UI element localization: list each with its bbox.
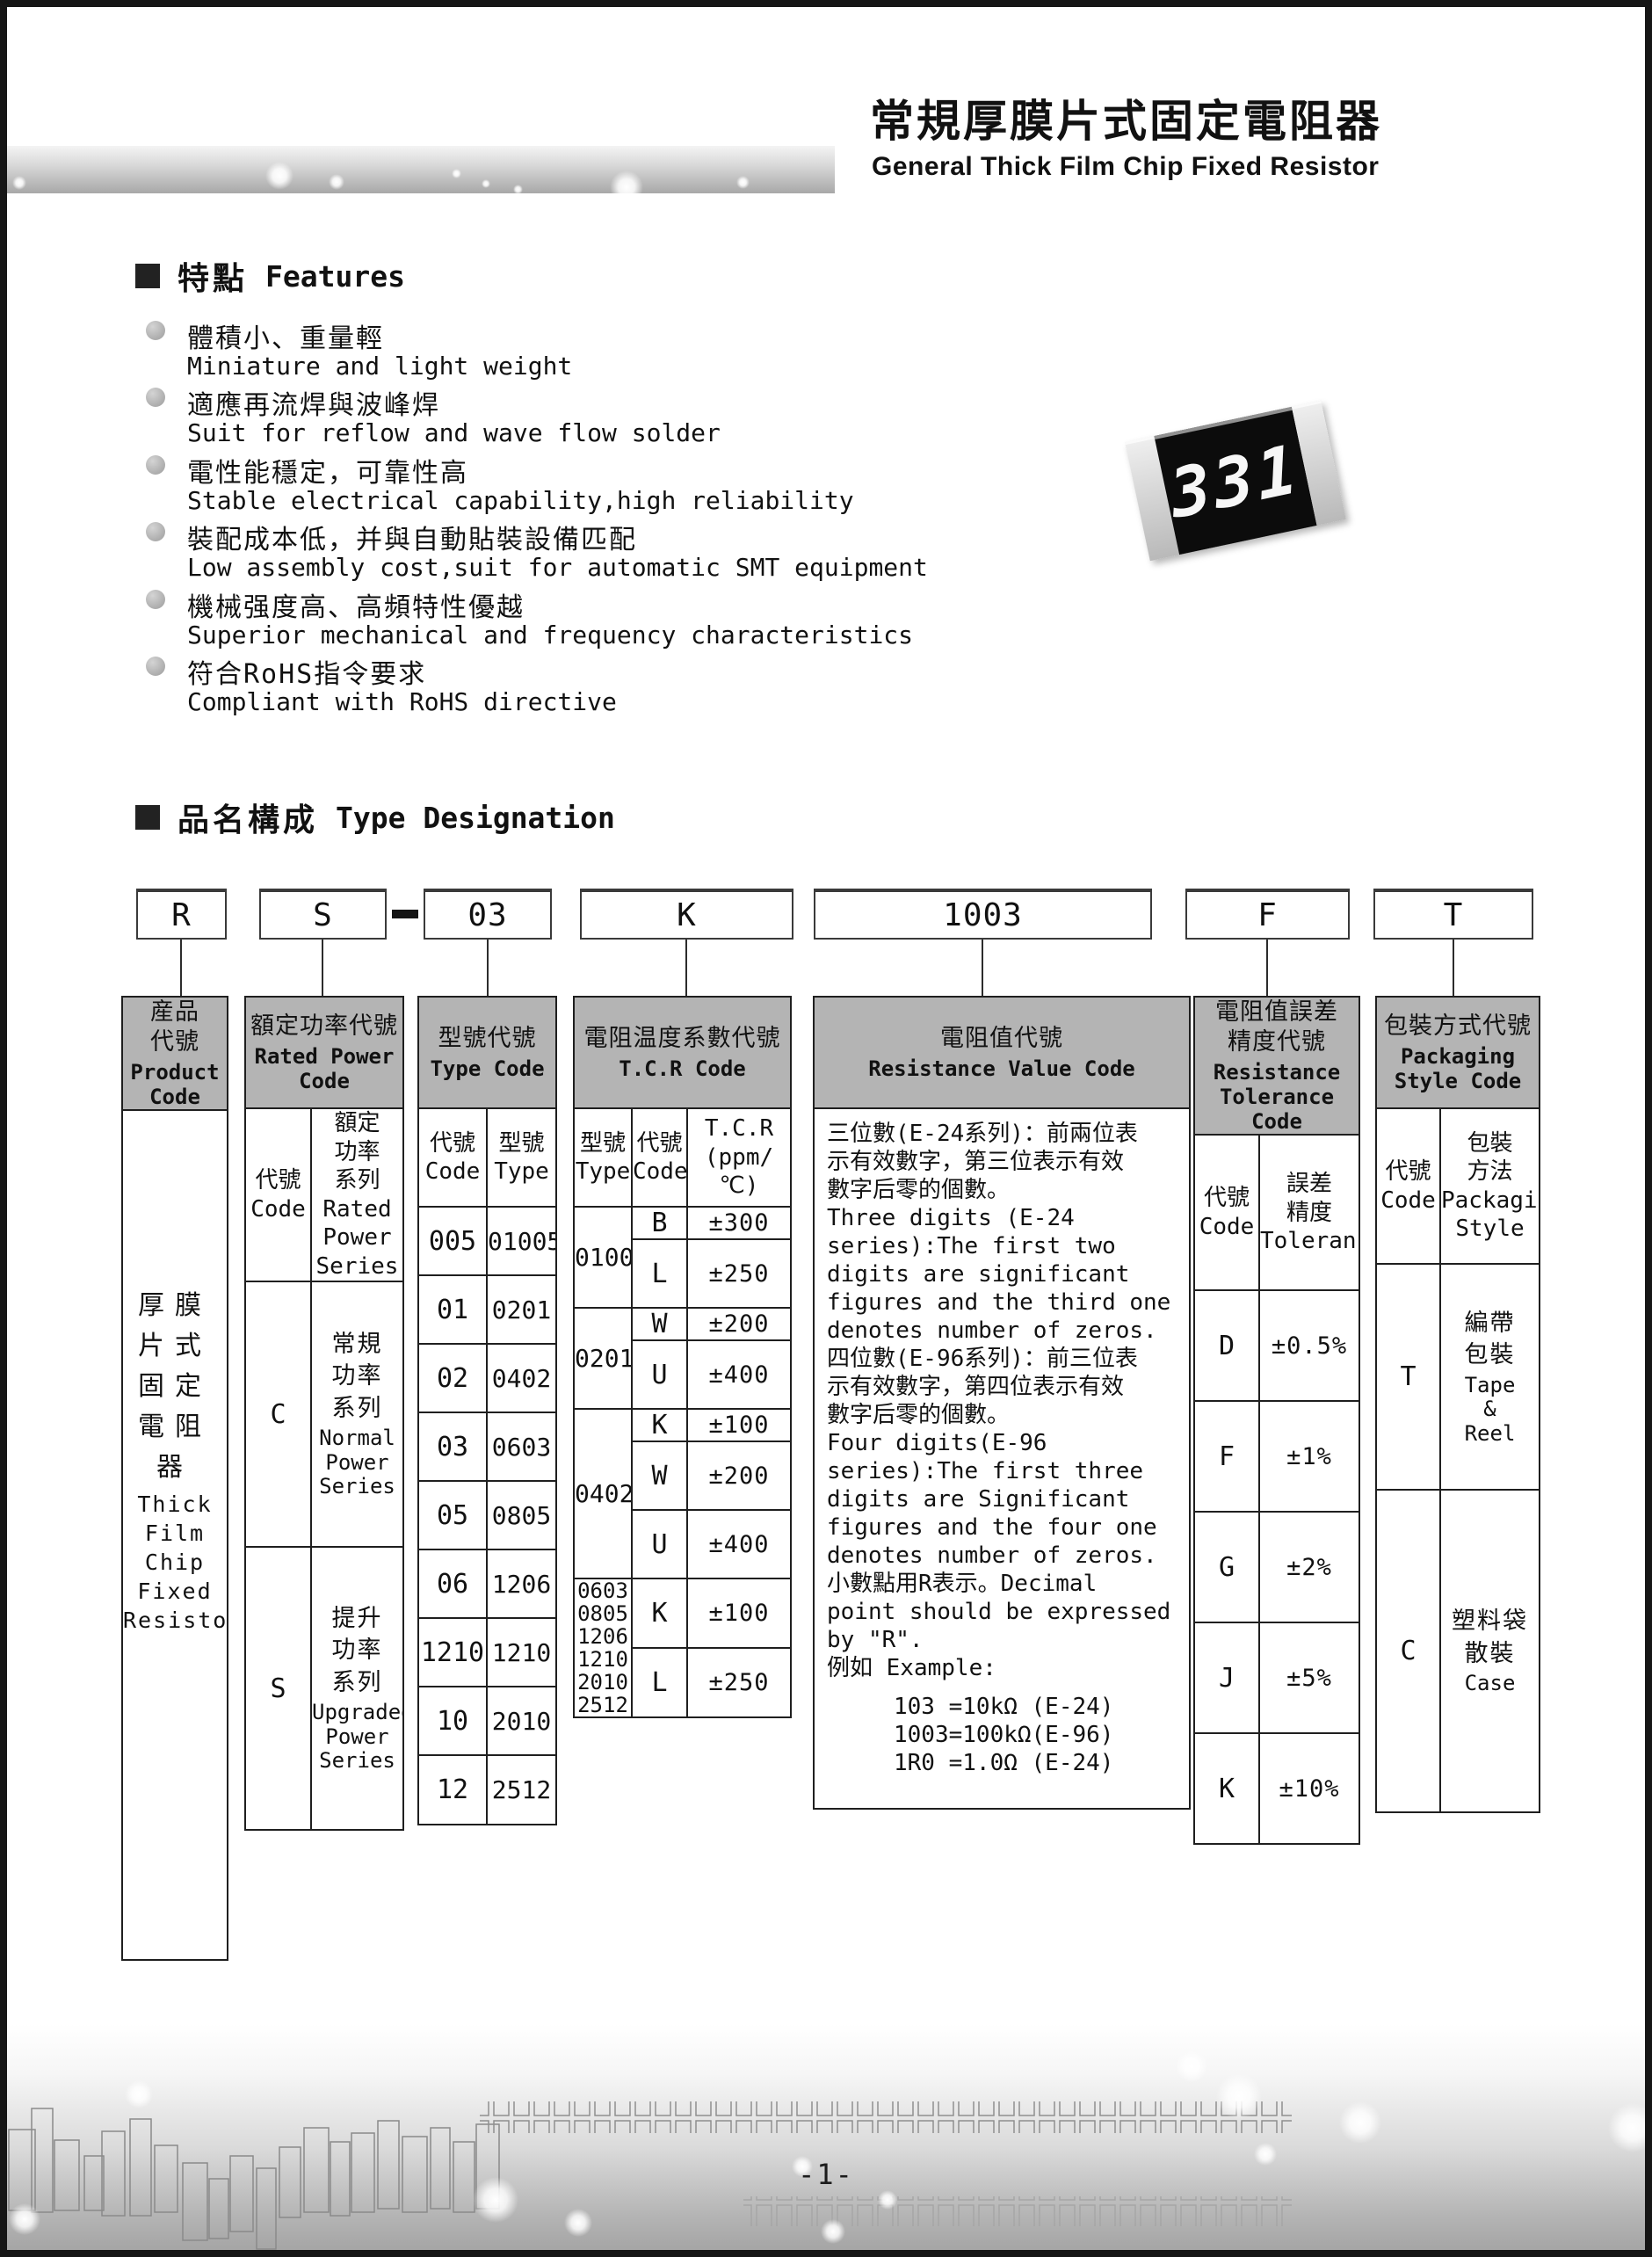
type-row-type: 2010 [487, 1687, 556, 1755]
resistance-value-text: 三位數(E-24系列)：前兩位表 示有效數字，第三位表示有效 數字后零的個數。 … [815, 1109, 1189, 1682]
resistance-value-column: 電阻值代號 Resistance Value Code 三位數(E-24系列)：… [813, 996, 1191, 1810]
packaging-en: Case [1441, 1672, 1539, 1696]
type-row-code: 1210 [418, 1618, 487, 1687]
tcr-value: ±250 [687, 1239, 791, 1308]
type-row-code: 005 [418, 1207, 487, 1275]
sparkle-icon [513, 185, 523, 194]
tcr-value: ±200 [687, 1308, 791, 1340]
tcr-value: ±250 [687, 1648, 791, 1717]
power-series-cell: 提升 功率 系列 Upgraded Power Series [311, 1547, 403, 1830]
header-gradient-bar [7, 146, 835, 193]
code-box-packaging: T [1373, 889, 1533, 940]
tolerance-value: ±1% [1259, 1401, 1359, 1512]
type-row-type: 0805 [487, 1481, 556, 1549]
type-row-type: 2512 [487, 1755, 556, 1825]
tcr-type-group: 0201 [574, 1308, 632, 1409]
feature-text-en: Low assembly cost,suit for automatic SMT… [187, 553, 928, 582]
subheader-text: 代號 Code [1195, 1184, 1258, 1241]
header-zh: 産品 代號 [123, 998, 227, 1057]
subheader-tolerance: 誤差 精度 Tolerance [1259, 1135, 1359, 1290]
power-series-cell: 常規 功率 系列 Normal Power Series [311, 1281, 403, 1547]
header-en: T.C.R Code [575, 1056, 790, 1081]
feature-item: 符合RoHS指令要求 Compliant with RoHS directive [146, 652, 1112, 721]
code-box-type: 03 [424, 889, 552, 940]
connector-line [180, 940, 182, 996]
dash-separator [392, 910, 418, 918]
tcr-code: W [632, 1441, 687, 1510]
product-code-header: 産品 代號 Product Code [122, 997, 228, 1110]
header-zh: 電阻温度系數代號 [575, 1024, 790, 1054]
packaging-zh: 編帶 包裝 [1441, 1308, 1539, 1372]
bottom-decoration-graphic [7, 2024, 1645, 2250]
power-code-cell: C [245, 1281, 311, 1547]
tolerance-code: K [1194, 1733, 1259, 1844]
tcr-code: K [632, 1409, 687, 1441]
rated-power-column: 額定功率代號 Rated Power Code 代號 Code 額定 功率 系列… [244, 996, 404, 1831]
subheader-series: 額定 功率 系列 Rated Power Series [311, 1108, 403, 1281]
feature-item: 機械强度高、高頻特性優越 Superior mechanical and fre… [146, 585, 1112, 654]
packaging-header: 包裝方式代號 Packaging Style Code [1376, 997, 1540, 1108]
features-section-heading: 特點 Features [135, 253, 405, 299]
header-zh: 額定功率代號 [246, 1012, 402, 1041]
bullet-icon [146, 455, 165, 475]
tcr-code: B [632, 1207, 687, 1239]
feature-text-zh: 機械强度高、高頻特性優越 [187, 585, 525, 624]
chip-body: 331 [1154, 407, 1316, 555]
feature-item: 適應再流焊與波峰焊 Suit for reflow and wave flow … [146, 383, 1112, 452]
subheader-text: 代號 Code [1377, 1158, 1439, 1215]
section-square-marker [135, 805, 160, 830]
features-heading-en: Features [265, 259, 405, 294]
connector-line [487, 940, 489, 996]
tcr-value: ±300 [687, 1207, 791, 1239]
connector-line [1266, 940, 1268, 996]
tcr-code: U [632, 1510, 687, 1578]
feature-item: 裝配成本低，并與自動貼裝設備匹配 Low assembly cost,suit … [146, 518, 1112, 586]
tcr-code: W [632, 1308, 687, 1340]
sparkle-icon [265, 162, 293, 190]
header-en: Product Code [123, 1060, 227, 1110]
resistance-value-header: 電阻值代號 Resistance Value Code [814, 997, 1190, 1108]
tolerance-value: ±10% [1259, 1733, 1359, 1844]
page-number: -1- [7, 2158, 1645, 2191]
code-box-product: R [136, 889, 227, 940]
tcr-value: ±100 [687, 1578, 791, 1648]
packaging-en: Tape & Reel [1441, 1374, 1539, 1447]
feature-item: 電性能穩定，可靠性高 Stable electrical capability,… [146, 451, 1112, 519]
tcr-header: 電阻温度系數代號 T.C.R Code [574, 997, 791, 1108]
series-en: Upgraded Power Series [312, 1701, 402, 1774]
packaging-style-cell: 編帶 包裝 Tape & Reel [1440, 1264, 1540, 1490]
type-row-code: 10 [418, 1687, 487, 1755]
page-title-en: General Thick Film Chip Fixed Resistor [872, 152, 1379, 182]
tolerance-code: G [1194, 1512, 1259, 1622]
page-title-zh: 常規厚膜片式固定電阻器 [870, 86, 1382, 149]
sparkle-icon [12, 176, 26, 190]
packaging-code: T [1376, 1264, 1440, 1490]
header-en: Resistance Tolerance Code [1195, 1060, 1359, 1135]
feature-text-en: Stable electrical capability,high reliab… [187, 486, 854, 515]
power-code-cell: S [245, 1547, 311, 1830]
bottom-decoration-band [7, 2024, 1645, 2250]
designation-section-heading: 品名構成 Type Designation [135, 795, 615, 840]
tcr-code: L [632, 1648, 687, 1717]
type-row-code: 06 [418, 1549, 487, 1618]
sparkle-icon [482, 179, 490, 188]
bullet-icon [146, 590, 165, 609]
code-box-resistance: 1003 [814, 889, 1152, 940]
type-row-code: 03 [418, 1412, 487, 1481]
type-row-type: 01005 [487, 1207, 556, 1275]
tcr-column: 電阻温度系數代號 T.C.R Code 型號 Type 代號 Code T.C.… [573, 996, 792, 1718]
type-row-code: 05 [418, 1481, 487, 1549]
subheader-code: 代號 Code [1194, 1135, 1259, 1290]
subheader-text: 代號 Code [633, 1129, 686, 1187]
bullet-icon [146, 321, 165, 340]
tolerance-value: ±2% [1259, 1512, 1359, 1622]
header-zh: 包裝方式代號 [1377, 1012, 1539, 1041]
bullet-icon [146, 522, 165, 541]
header-zh: 型號代號 [419, 1024, 555, 1054]
tcr-code: L [632, 1239, 687, 1308]
subheader-text: 代號 Code [246, 1166, 310, 1223]
subheader-text: 包裝 方法 Packaging Style [1441, 1129, 1539, 1244]
subheader-text: 額定 功率 系列 Rated Power Series [312, 1109, 402, 1281]
subheader-type: 型號 Type [574, 1108, 632, 1207]
series-zh: 常規 功率 系列 [312, 1329, 402, 1425]
tolerance-column: 電阻值誤差 精度代號 Resistance Tolerance Code 代號 … [1193, 996, 1360, 1845]
sparkle-icon [452, 169, 461, 178]
tolerance-code: F [1194, 1401, 1259, 1512]
type-row-type: 0201 [487, 1275, 556, 1344]
header-zh: 電阻值誤差 精度代號 [1195, 998, 1359, 1057]
connector-line [322, 940, 323, 996]
header-en: Packaging Style Code [1377, 1044, 1539, 1094]
tcr-value: ±400 [687, 1510, 791, 1578]
tcr-type-group: 0603 0805 1206 1210 2010 2512 [574, 1578, 632, 1717]
subheader-code: 代號 Code [1376, 1108, 1440, 1264]
subheader-text: 型號 Type [575, 1129, 631, 1187]
subheader-code: 代號 Code [245, 1108, 311, 1281]
connector-line [685, 940, 687, 996]
header-en: Type Code [419, 1056, 555, 1081]
feature-text-zh: 裝配成本低，并與自動貼裝設備匹配 [187, 518, 637, 556]
type-row-code: 01 [418, 1275, 487, 1344]
code-box-tolerance: F [1185, 889, 1350, 940]
code-box-power: S [259, 889, 387, 940]
feature-text-zh: 符合RoHS指令要求 [187, 652, 426, 691]
tcr-type-group: 0402 [574, 1409, 632, 1578]
packaging-code: C [1376, 1490, 1440, 1812]
header-zh: 電阻值代號 [815, 1024, 1189, 1054]
sparkle-icon [329, 174, 344, 190]
series-en: Normal Power Series [312, 1426, 402, 1499]
section-square-marker [135, 264, 160, 288]
feature-item: 體積小、重量輕 Miniature and light weight [146, 316, 1112, 385]
datasheet-page: 常規厚膜片式固定電阻器 General Thick Film Chip Fixe… [0, 0, 1652, 2257]
product-body-zh: 厚膜 片式 固定 電阻器 [123, 1286, 227, 1488]
resistance-value-body: 三位數(E-24系列)：前兩位表 示有效數字，第三位表示有效 數字后零的個數。 … [814, 1108, 1190, 1809]
tcr-code: U [632, 1340, 687, 1409]
type-row-type: 1210 [487, 1618, 556, 1687]
feature-text-en: Miniature and light weight [187, 352, 572, 381]
feature-text-en: Superior mechanical and frequency charac… [187, 620, 913, 650]
bullet-icon [146, 657, 165, 676]
packaging-zh: 塑料袋 散裝 [1441, 1606, 1539, 1670]
packaging-style-cell: 塑料袋 散裝 Case [1440, 1490, 1540, 1812]
tolerance-value: ±0.5% [1259, 1290, 1359, 1401]
type-row-code: 02 [418, 1344, 487, 1412]
sparkle-icon [736, 176, 750, 189]
subheader-text: 代號 Code [419, 1129, 486, 1187]
sparkle-icon [610, 171, 643, 204]
subheader-code: 代號 Code [632, 1108, 687, 1207]
feature-text-en: Compliant with RoHS directive [187, 687, 617, 716]
designation-heading-zh: 品名構成 [178, 795, 318, 840]
feature-text-zh: 體積小、重量輕 [187, 316, 384, 355]
tcr-value: ±400 [687, 1340, 791, 1409]
product-code-column: 産品 代號 Product Code 厚膜 片式 固定 電阻器 Thick Fi… [121, 996, 228, 1961]
resistor-chip-photo: 331 [1125, 401, 1346, 561]
series-zh: 提升 功率 系列 [312, 1603, 402, 1699]
connector-line [982, 940, 983, 996]
header-en: Rated Power Code [246, 1044, 402, 1094]
type-row-type: 1206 [487, 1549, 556, 1618]
type-code-column: 型號代號 Type Code 代號 Code 型號 Type 00501005 … [417, 996, 557, 1825]
subheader-text: 誤差 精度 Tolerance [1260, 1170, 1359, 1256]
feature-text-en: Suit for reflow and wave flow solder [187, 418, 721, 447]
connector-line [1453, 940, 1454, 996]
resistance-value-examples: 103 =10kΩ (E-24) 1003=100kΩ(E-96) 1R0 =1… [815, 1682, 1189, 1777]
tolerance-code: J [1194, 1622, 1259, 1733]
subheader-text: 型號 Type [488, 1129, 555, 1187]
type-code-header: 型號代號 Type Code [418, 997, 556, 1108]
code-box-tcr: K [580, 889, 793, 940]
subheader-style: 包裝 方法 Packaging Style [1440, 1108, 1540, 1264]
subheader-tcr-value: T.C.R (ppm/℃) [687, 1108, 791, 1207]
chip-marking: 331 [1166, 428, 1305, 533]
subheader-text: T.C.R (ppm/℃) [688, 1114, 790, 1201]
header-en: Resistance Value Code [815, 1056, 1189, 1081]
tcr-value: ±200 [687, 1441, 791, 1510]
type-row-type: 0603 [487, 1412, 556, 1481]
designation-heading-en: Type Designation [336, 801, 615, 835]
tolerance-header: 電阻值誤差 精度代號 Resistance Tolerance Code [1194, 997, 1359, 1135]
bullet-icon [146, 388, 165, 407]
type-row-type: 0402 [487, 1344, 556, 1412]
product-body-en: Thick Film Chip Fixed Resistor [123, 1490, 227, 1635]
type-row-code: 12 [418, 1755, 487, 1825]
features-heading-zh: 特點 [178, 253, 248, 299]
rated-power-header: 額定功率代號 Rated Power Code [245, 997, 403, 1108]
tcr-value: ±100 [687, 1409, 791, 1441]
feature-text-zh: 適應再流焊與波峰焊 [187, 383, 440, 422]
tolerance-value: ±5% [1259, 1622, 1359, 1733]
subheader-type: 型號 Type [487, 1108, 556, 1207]
subheader-code: 代號 Code [418, 1108, 487, 1207]
tcr-code: K [632, 1578, 687, 1648]
feature-text-zh: 電性能穩定，可靠性高 [187, 451, 468, 490]
tolerance-code: D [1194, 1290, 1259, 1401]
packaging-column: 包裝方式代號 Packaging Style Code 代號 Code 包裝 方… [1375, 996, 1540, 1813]
product-code-body: 厚膜 片式 固定 電阻器 Thick Film Chip Fixed Resis… [122, 1110, 228, 1960]
tcr-type-group: 01005 [574, 1207, 632, 1308]
